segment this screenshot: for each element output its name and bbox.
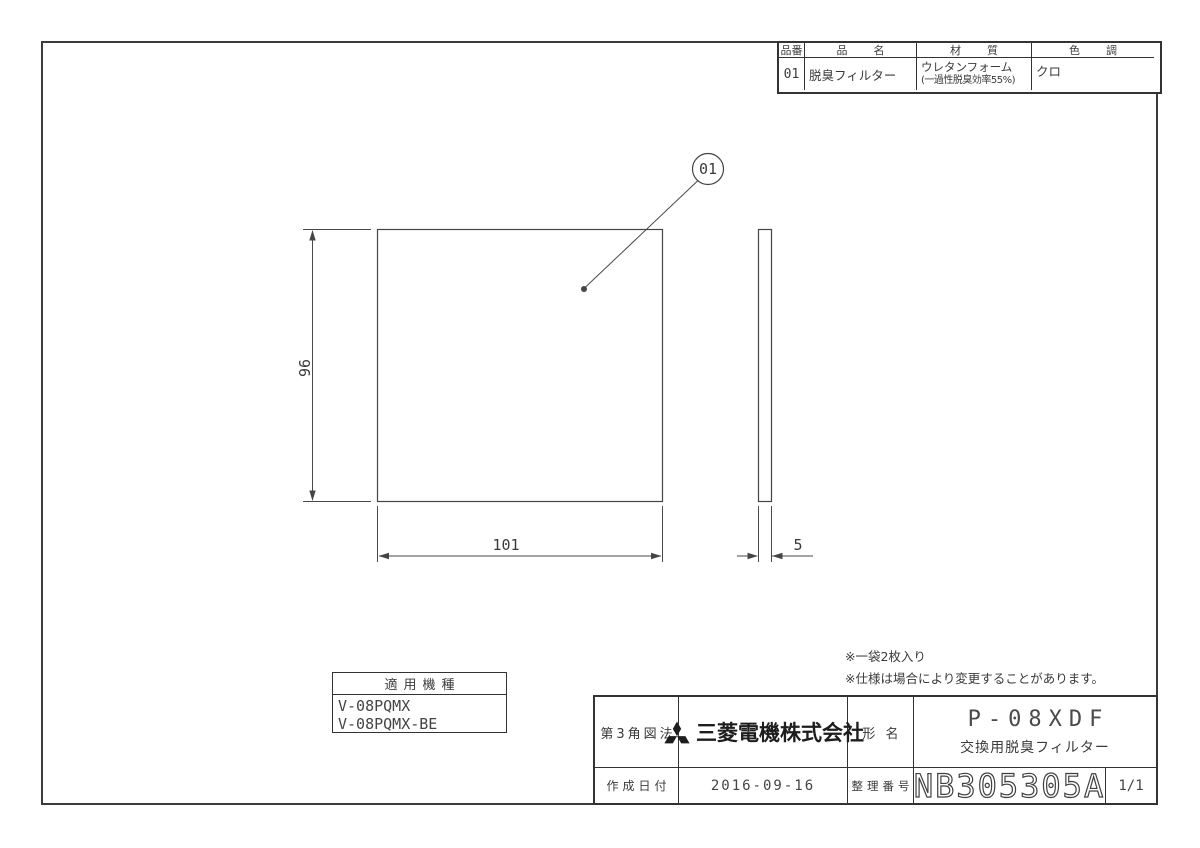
arrowhead-thickness-left: [748, 553, 759, 559]
ref-number: NB305305A: [914, 767, 1105, 805]
arrowhead-thickness-right: [772, 553, 783, 559]
ref-label-cell: 整理番号: [848, 768, 914, 803]
date-label-cell: 作成日付: [595, 768, 679, 803]
note-line-2: ※仕様は場合により変更することがあります。: [845, 668, 1104, 690]
model-item: V-08PQMX-BE: [338, 715, 506, 733]
model-label: 形 名: [862, 723, 901, 742]
sheet-number-cell: 1/1: [1106, 768, 1156, 803]
applicable-models-title: 適用機種: [384, 674, 460, 693]
mitsubishi-logo-icon: [662, 721, 692, 744]
balloon-label: 01: [699, 160, 717, 178]
front-view-outline: [378, 230, 663, 502]
arrowhead-down: [309, 491, 315, 502]
applicable-models-header: 適用機種: [333, 673, 506, 695]
company-cell: 三菱電機株式会社: [679, 697, 848, 768]
applicable-models-list: V-08PQMX V-08PQMX-BE: [333, 695, 506, 733]
leader-line: [584, 181, 698, 289]
applicable-models-table: 適用機種 V-08PQMX V-08PQMX-BE: [332, 672, 507, 733]
notes: ※一袋2枚入り ※仕様は場合により変更することがあります。: [845, 646, 1104, 690]
model-value-cell: P-08XDF 交換用脱臭フィルター: [914, 697, 1156, 768]
date-value-cell: 2016-09-16: [679, 768, 848, 803]
model-code: P-08XDF: [968, 707, 1110, 732]
side-view-outline: [759, 230, 772, 502]
dim-width-label: 101: [492, 536, 519, 554]
title-block: 第3角図法 三菱電機株式会社 形 名 P-08XDF 交換用脱臭フィルター 作成…: [593, 695, 1158, 805]
date-label: 作成日付: [606, 777, 670, 794]
note-line-1: ※一袋2枚入り: [845, 646, 1104, 668]
sheet-number: 1/1: [1118, 778, 1143, 794]
arrowhead-right: [651, 553, 662, 559]
model-label-cell: 形 名: [848, 697, 914, 768]
ref-value-cell: NB305305A: [914, 768, 1106, 803]
model-item: V-08PQMX: [338, 697, 506, 715]
arrowhead-up: [309, 230, 315, 241]
date-value: 2016-09-16: [711, 778, 815, 794]
company-name: 三菱電機株式会社: [696, 717, 864, 747]
product-name: 交換用脱臭フィルター: [960, 737, 1110, 757]
dim-height-label: 96: [296, 359, 314, 377]
arrowhead-left: [379, 553, 390, 559]
leader-dot: [581, 286, 587, 292]
dim-thickness-label: 5: [793, 536, 802, 554]
ref-label: 整理番号: [852, 778, 914, 794]
drawing-sheet: 品番 品名 材質 色調 01 脱臭フィルター ウレタンフォーム (一過性脱臭効率…: [0, 0, 1200, 848]
